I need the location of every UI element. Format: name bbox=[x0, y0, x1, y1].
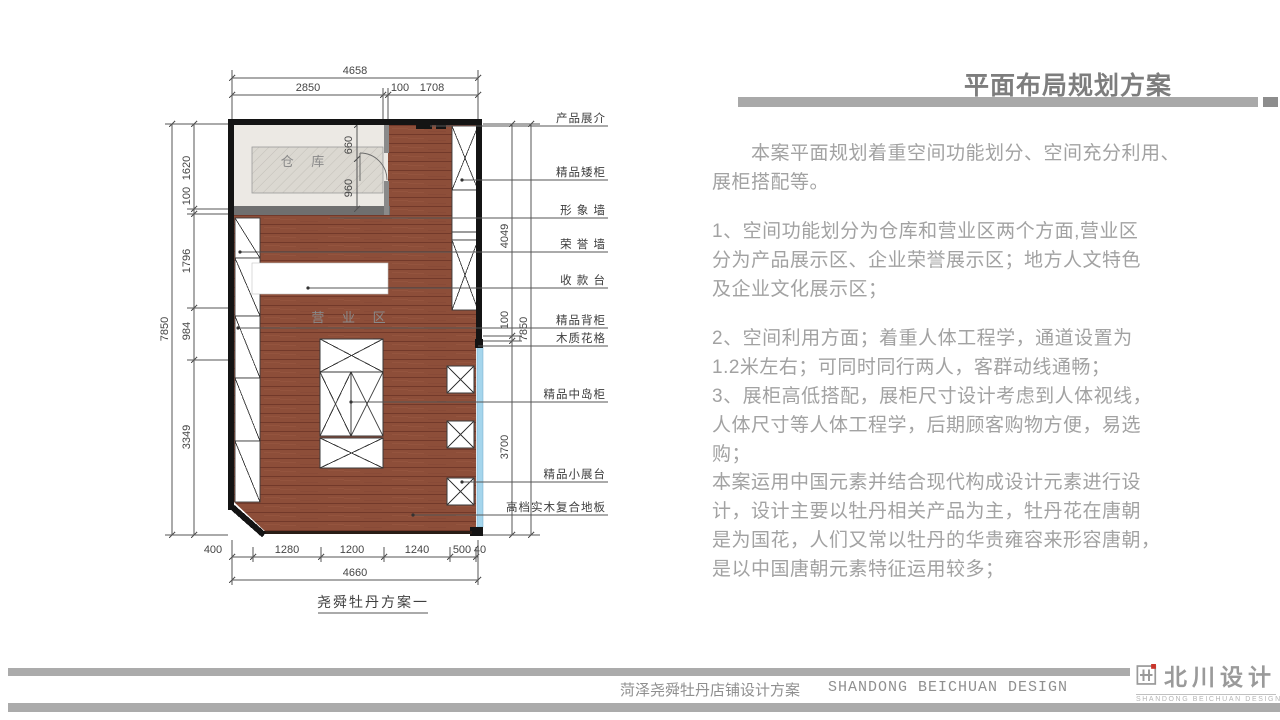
dim-left-1796: 1796 bbox=[181, 249, 193, 273]
left-wall-cabinets bbox=[235, 218, 260, 502]
dim-right-4049: 4049 bbox=[499, 224, 511, 248]
label-product-display: 产品展介 bbox=[556, 111, 606, 125]
business-area-label: 营 业 区 bbox=[311, 310, 392, 325]
image-wall bbox=[234, 206, 390, 215]
cash-counter bbox=[252, 263, 388, 294]
dim-top-1708: 1708 bbox=[420, 82, 444, 94]
label-honor-wall: 荣 誉 墙 bbox=[560, 237, 606, 251]
paragraph-item2-3: 2、空间利用方面；着重人体工程学，通道设置为 1.2米左右；可同时同行两人，客群… bbox=[712, 324, 1224, 469]
dim-left-overall: 7850 bbox=[160, 317, 171, 341]
dim-right-3700: 3700 bbox=[499, 435, 511, 459]
logo-subtitle: SHANDONG BEICHUAN DESIGN bbox=[1136, 696, 1276, 703]
footer-project-name: 菏泽尧舜牡丹店铺设计方案 bbox=[620, 679, 800, 700]
dim-bottom-1240: 1240 bbox=[405, 544, 429, 556]
dim-door-960: 960 bbox=[343, 179, 355, 197]
warehouse-label: 仓 库 bbox=[281, 154, 332, 169]
floor-areas: 仓 库 营 业 区 bbox=[234, 125, 476, 534]
footer-company-en: SHANDONG BEICHUAN DESIGN bbox=[828, 679, 1068, 700]
label-cash-counter: 收 款 台 bbox=[560, 273, 606, 287]
callout-labels: 产品展介 精品矮柜 形 象 墙 荣 誉 墙 收 款 台 精品背柜 木质花格 精品… bbox=[506, 111, 606, 514]
dim-left-984: 984 bbox=[181, 322, 193, 340]
label-wood-lattice: 木质花格 bbox=[556, 331, 606, 345]
dim-left-100: 100 bbox=[181, 187, 193, 205]
dim-bottom-40: 40 bbox=[474, 544, 486, 556]
footer-bar-bottom bbox=[8, 703, 1280, 712]
dim-top-2850: 2850 bbox=[296, 82, 320, 94]
title-bar-cap bbox=[1263, 97, 1278, 107]
footer-text: 菏泽尧舜牡丹店铺设计方案 SHANDONG BEICHUAN DESIGN bbox=[620, 679, 1068, 700]
small-display-stands bbox=[447, 366, 474, 505]
dim-left-1620: 1620 bbox=[181, 156, 193, 180]
dim-top-100: 100 bbox=[391, 82, 409, 94]
logo-divider bbox=[1136, 694, 1276, 695]
title-underline-bar bbox=[738, 97, 1278, 107]
label-small-stand: 精品小展台 bbox=[544, 467, 607, 481]
logo-name: 北川设计 bbox=[1164, 658, 1276, 692]
right-dimensions: 4049 100 3700 7850 bbox=[483, 121, 540, 538]
dim-bottom-1200: 1200 bbox=[340, 544, 364, 556]
bottom-dimensions: 400 1280 1200 1240 500 40 4660 bbox=[204, 540, 486, 585]
dim-bottom-1280: 1280 bbox=[275, 544, 299, 556]
paragraph-item1: 1、空间功能划分为仓库和营业区两个方面,营业区 分为产品展示区、企业荣誉展示区；… bbox=[712, 217, 1224, 304]
title-bar-segment bbox=[738, 97, 1258, 107]
label-wood-flooring: 高档实木复合地板 bbox=[506, 500, 606, 514]
dim-right-100: 100 bbox=[499, 311, 511, 329]
label-low-cabinet: 精品矮柜 bbox=[556, 165, 606, 179]
floor-plan: 仓 库 营 业 区 660 960 bbox=[160, 55, 638, 625]
beichuan-logo: 北川设计 SHANDONG BEICHUAN DESIGN bbox=[1136, 658, 1276, 703]
dim-right-overall: 7850 bbox=[518, 317, 530, 341]
dim-bottom-overall: 4660 bbox=[343, 567, 367, 579]
presentation-slide: 平面布局规划方案 本案平面规划着重空间功能划分、空间充分利用、 展柜搭配等。 1… bbox=[0, 0, 1280, 720]
paragraph-closing: 本案运用中国元素并结合现代构成设计元素进行设 计，设计主要以牡丹相关产品为主，牡… bbox=[712, 468, 1224, 584]
dim-top-overall: 4658 bbox=[343, 65, 367, 77]
label-image-wall: 形 象 墙 bbox=[560, 203, 606, 217]
label-island-cabinet: 精品中岛柜 bbox=[544, 387, 607, 401]
label-back-cabinet: 精品背柜 bbox=[556, 313, 606, 327]
footer-bar-top bbox=[8, 668, 1130, 676]
left-dimensions: 7850 1620 100 1796 984 3349 bbox=[160, 121, 228, 538]
dim-left-3349: 3349 bbox=[181, 425, 193, 449]
dim-door-660: 660 bbox=[343, 136, 355, 154]
dim-bottom-400: 400 bbox=[204, 544, 222, 556]
dim-bottom-500: 500 bbox=[453, 544, 471, 556]
plan-caption-text: 尧舜牡丹方案一 bbox=[317, 594, 429, 610]
plan-caption: 尧舜牡丹方案一 bbox=[317, 594, 429, 613]
beichuan-logo-icon bbox=[1136, 659, 1158, 691]
paragraph-intro: 本案平面规划着重空间功能划分、空间充分利用、 展柜搭配等。 bbox=[712, 139, 1224, 197]
top-dimensions: 4658 2850 100 1708 bbox=[229, 65, 481, 119]
logo-red-accent bbox=[1151, 664, 1156, 669]
